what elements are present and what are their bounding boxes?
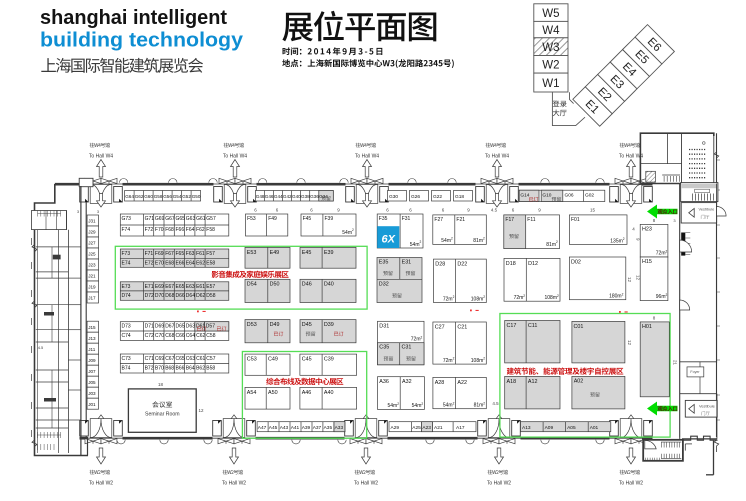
- svg-text:To Hall W4: To Hall W4: [485, 154, 509, 160]
- svg-text:F27: F27: [434, 217, 443, 223]
- svg-text:D45: D45: [302, 322, 312, 328]
- svg-text:C31: C31: [402, 345, 412, 351]
- svg-text:F53: F53: [247, 216, 256, 222]
- svg-text:E39: E39: [324, 250, 334, 256]
- svg-text:6: 6: [512, 208, 515, 213]
- svg-text:135m: 135m: [610, 238, 623, 244]
- svg-text:F62: F62: [196, 227, 205, 233]
- svg-text:A45: A45: [269, 425, 278, 431]
- svg-text:F11: F11: [527, 217, 535, 223]
- svg-text:F57: F57: [206, 251, 215, 257]
- svg-text:F69: F69: [155, 251, 164, 257]
- svg-text:To Hall W4: To Hall W4: [223, 154, 247, 160]
- svg-text:F70: F70: [155, 227, 164, 233]
- svg-text:B58: B58: [206, 366, 215, 372]
- svg-text:A32: A32: [402, 379, 412, 385]
- svg-text:B68: B68: [165, 366, 174, 372]
- svg-text:B62: B62: [196, 366, 205, 372]
- svg-text:D71: D71: [145, 324, 154, 330]
- svg-text:E74: E74: [122, 260, 131, 266]
- svg-text:F74: F74: [122, 227, 131, 233]
- svg-text:2: 2: [483, 236, 485, 240]
- svg-text:G18: G18: [455, 194, 464, 200]
- svg-text:A50: A50: [268, 390, 278, 396]
- svg-text:D70: D70: [155, 293, 164, 299]
- svg-text:180m: 180m: [609, 294, 622, 300]
- svg-text:D72: D72: [145, 293, 154, 299]
- svg-text:To Hall W2: To Hall W2: [487, 481, 511, 487]
- svg-text:C64: C64: [186, 333, 195, 339]
- svg-text:To Hall W2: To Hall W2: [354, 481, 378, 487]
- svg-text:2: 2: [523, 294, 525, 298]
- svg-text:E72: E72: [145, 260, 154, 266]
- svg-text:4.5: 4.5: [491, 208, 498, 213]
- svg-text:F45: F45: [303, 216, 312, 222]
- svg-text:F17: F17: [505, 217, 514, 223]
- svg-text:54m: 54m: [443, 403, 453, 409]
- svg-text:D68: D68: [165, 293, 174, 299]
- svg-text:D65: D65: [176, 324, 185, 330]
- svg-text:D32: D32: [379, 281, 389, 287]
- svg-text:C63: C63: [186, 356, 195, 362]
- svg-text:D46: D46: [302, 282, 312, 288]
- svg-text:12: 12: [199, 408, 205, 413]
- svg-text:72m: 72m: [411, 337, 421, 343]
- svg-text:2: 2: [556, 240, 558, 244]
- svg-text:G65: G65: [176, 216, 186, 222]
- svg-text:C74: C74: [122, 333, 131, 339]
- svg-text:C68: C68: [165, 333, 174, 339]
- svg-text:B72: B72: [145, 366, 154, 372]
- svg-text:6: 6: [310, 208, 313, 213]
- svg-text:A23: A23: [422, 425, 431, 431]
- svg-text:E58: E58: [206, 260, 215, 266]
- svg-text:F49: F49: [268, 216, 277, 222]
- svg-text:F68: F68: [165, 227, 174, 233]
- svg-text:72m: 72m: [656, 251, 666, 257]
- svg-text:A17: A17: [456, 425, 465, 431]
- svg-text:A46: A46: [302, 390, 312, 396]
- svg-text:81m: 81m: [546, 242, 556, 248]
- svg-text:54m: 54m: [441, 238, 451, 244]
- svg-text:G71: G71: [145, 216, 155, 222]
- svg-text:C69: C69: [155, 356, 164, 362]
- svg-text:2: 2: [352, 228, 354, 232]
- svg-text:B70: B70: [155, 366, 164, 372]
- svg-text:2: 2: [622, 293, 624, 297]
- svg-text:G40: G40: [292, 194, 301, 199]
- svg-text:To Hall W2: To Hall W2: [89, 481, 113, 487]
- svg-text:E62: E62: [196, 260, 205, 266]
- svg-text:G62: G62: [135, 194, 144, 199]
- svg-text:D40: D40: [324, 282, 334, 288]
- svg-text:F01: F01: [571, 217, 580, 223]
- svg-text:A29: A29: [391, 425, 400, 431]
- svg-text:J17: J17: [88, 296, 96, 301]
- svg-text:G73: G73: [122, 216, 132, 222]
- svg-text:J31: J31: [88, 219, 96, 224]
- svg-text:8: 8: [653, 316, 656, 321]
- svg-text:6: 6: [442, 208, 445, 213]
- svg-text:D54: D54: [247, 282, 257, 288]
- svg-text:G56: G56: [163, 194, 172, 199]
- svg-text:3: 3: [77, 209, 80, 214]
- svg-text:6: 6: [386, 208, 389, 213]
- svg-text:Foyer: Foyer: [690, 370, 700, 374]
- svg-text:2: 2: [666, 249, 668, 253]
- svg-text:B74: B74: [122, 366, 131, 372]
- svg-text:G10: G10: [542, 193, 551, 199]
- svg-text:F64: F64: [186, 227, 195, 233]
- svg-text:D64: D64: [186, 293, 195, 299]
- svg-text:D58: D58: [206, 293, 215, 299]
- svg-text:G52: G52: [182, 194, 191, 199]
- svg-text:To Hall W4: To Hall W4: [355, 154, 379, 160]
- svg-text:E64: E64: [186, 260, 195, 266]
- svg-text:Vestibule: Vestibule: [699, 207, 715, 212]
- svg-text:G14: G14: [520, 193, 529, 199]
- svg-text:D39: D39: [324, 322, 334, 328]
- svg-text:C49: C49: [268, 357, 278, 363]
- svg-text:4: 4: [632, 227, 635, 232]
- svg-text:D12: D12: [528, 261, 538, 267]
- svg-text:6: 6: [409, 208, 412, 213]
- svg-text:E61: E61: [196, 284, 205, 290]
- svg-text:C53: C53: [247, 357, 257, 363]
- svg-text:A40: A40: [324, 390, 334, 396]
- svg-text:W3: W3: [542, 42, 559, 54]
- svg-text:H15: H15: [642, 259, 652, 265]
- svg-text:72m: 72m: [443, 296, 453, 302]
- svg-text:Seminar Room: Seminar Room: [145, 412, 180, 418]
- svg-text:A39: A39: [302, 425, 311, 431]
- svg-text:D22: D22: [457, 262, 467, 268]
- svg-text:54m: 54m: [412, 403, 422, 409]
- svg-text:J15: J15: [88, 325, 96, 330]
- svg-text:F66: F66: [176, 227, 185, 233]
- svg-text:C67: C67: [165, 356, 174, 362]
- svg-text:9: 9: [538, 208, 541, 213]
- svg-text:15: 15: [590, 208, 596, 213]
- svg-text:F71: F71: [145, 251, 154, 257]
- svg-text:81m: 81m: [474, 403, 484, 409]
- svg-text:A28: A28: [435, 380, 445, 386]
- svg-text:G48: G48: [256, 194, 265, 199]
- svg-text:A05: A05: [567, 425, 576, 431]
- svg-text:A21: A21: [434, 425, 443, 431]
- svg-text:G02: G02: [585, 193, 594, 199]
- svg-text:F65: F65: [176, 251, 185, 257]
- svg-text:2: 2: [483, 295, 485, 299]
- svg-text:E66: E66: [176, 260, 185, 266]
- svg-text:E73: E73: [122, 284, 131, 290]
- svg-text:D69: D69: [155, 324, 164, 330]
- svg-text:54m: 54m: [410, 242, 420, 248]
- svg-text:E67: E67: [165, 284, 174, 290]
- svg-text:J05: J05: [88, 380, 96, 385]
- svg-text:D31: D31: [379, 323, 389, 329]
- svg-text:E35: E35: [379, 260, 389, 266]
- svg-text:81m: 81m: [473, 238, 483, 244]
- svg-text:A12: A12: [528, 379, 538, 385]
- svg-text:A33: A33: [335, 425, 344, 431]
- svg-text:D02: D02: [571, 259, 581, 265]
- svg-text:E53: E53: [247, 250, 257, 256]
- svg-text:C72: C72: [145, 333, 154, 339]
- svg-text:B64: B64: [186, 366, 195, 372]
- svg-text:W1: W1: [542, 78, 559, 90]
- svg-text:G30: G30: [389, 194, 398, 200]
- svg-text:9: 9: [337, 208, 340, 213]
- svg-text:C73: C73: [122, 356, 131, 362]
- svg-text:6: 6: [276, 208, 279, 213]
- svg-text:J03: J03: [88, 391, 96, 396]
- svg-text:F35: F35: [379, 216, 388, 222]
- svg-text:J29: J29: [88, 230, 96, 235]
- svg-text:A02: A02: [574, 378, 584, 384]
- svg-text:A37: A37: [313, 425, 322, 431]
- svg-text:9: 9: [467, 208, 470, 213]
- svg-text:C21: C21: [457, 324, 467, 330]
- svg-text:C58: C58: [206, 333, 215, 339]
- svg-text:D67: D67: [165, 324, 174, 330]
- svg-text:3: 3: [673, 218, 676, 223]
- svg-text:D62: D62: [196, 293, 205, 299]
- svg-text:A22: A22: [457, 380, 467, 386]
- svg-text:J23: J23: [88, 263, 96, 268]
- svg-text:J11: J11: [88, 347, 96, 352]
- svg-text:12: 12: [627, 340, 632, 346]
- svg-text:C27: C27: [435, 324, 445, 330]
- svg-text:E57: E57: [206, 284, 215, 290]
- svg-text:A01: A01: [590, 425, 599, 431]
- svg-text:21: 21: [673, 360, 678, 366]
- svg-text:2: 2: [483, 401, 485, 405]
- svg-text:2: 2: [451, 236, 453, 240]
- svg-text:J27: J27: [88, 241, 96, 246]
- svg-text:F31: F31: [402, 216, 411, 222]
- svg-text:J13: J13: [88, 336, 96, 341]
- svg-text:D66: D66: [176, 293, 185, 299]
- svg-text:G50: G50: [192, 194, 201, 199]
- svg-text:shanghai intelligent: shanghai intelligent: [40, 6, 227, 29]
- svg-text:G26: G26: [411, 194, 420, 200]
- svg-text:F63: F63: [186, 251, 195, 257]
- svg-text:D28: D28: [435, 262, 445, 268]
- svg-text:8: 8: [653, 218, 656, 223]
- svg-text:2: 2: [421, 335, 423, 339]
- svg-text:F67: F67: [165, 251, 174, 257]
- svg-text:G67: G67: [165, 216, 175, 222]
- svg-text:2: 2: [557, 294, 559, 298]
- svg-text:C35: C35: [379, 345, 389, 351]
- svg-text:12: 12: [627, 277, 632, 283]
- svg-text:2: 2: [483, 357, 485, 361]
- svg-text:G63: G63: [186, 216, 196, 222]
- svg-text:A43: A43: [280, 425, 289, 431]
- svg-text:72m: 72m: [443, 358, 453, 364]
- svg-text:2: 2: [397, 402, 399, 406]
- svg-text:J19: J19: [88, 285, 96, 290]
- svg-text:2: 2: [453, 295, 455, 299]
- svg-text:D74: D74: [122, 293, 131, 299]
- svg-text:G46: G46: [265, 194, 274, 199]
- svg-text:G44: G44: [274, 194, 283, 199]
- svg-text:12: 12: [636, 275, 641, 281]
- svg-text:C62: C62: [196, 333, 205, 339]
- svg-text:W5: W5: [542, 8, 559, 20]
- svg-text:D53: D53: [247, 322, 257, 328]
- svg-text:A35: A35: [324, 425, 333, 431]
- svg-text:D57: D57: [206, 324, 215, 330]
- svg-text:54m: 54m: [342, 230, 352, 236]
- svg-text:E71: E71: [145, 284, 154, 290]
- svg-text:F61: F61: [196, 251, 205, 257]
- svg-text:108m: 108m: [471, 296, 484, 302]
- svg-text:J25: J25: [88, 252, 96, 257]
- svg-text:C17: C17: [507, 323, 517, 329]
- svg-text:G64: G64: [125, 194, 134, 199]
- svg-text:4.5: 4.5: [492, 401, 499, 406]
- svg-text:F21: F21: [456, 217, 465, 223]
- svg-text:J01: J01: [88, 402, 96, 407]
- svg-text:E69: E69: [155, 284, 164, 290]
- svg-text:G61: G61: [196, 216, 206, 222]
- svg-text:building technology: building technology: [40, 29, 244, 52]
- svg-text:J09: J09: [88, 358, 96, 363]
- svg-text:54m: 54m: [387, 403, 397, 409]
- svg-text:H23: H23: [642, 227, 652, 233]
- svg-text:108m: 108m: [544, 295, 557, 301]
- svg-text:D49: D49: [270, 322, 280, 328]
- svg-text:2: 2: [453, 401, 455, 405]
- svg-text:D18: D18: [506, 261, 516, 267]
- svg-text:2: 2: [666, 293, 668, 297]
- svg-text:C11: C11: [528, 323, 538, 329]
- svg-text:To Hall W2: To Hall W2: [619, 481, 643, 487]
- svg-text:2: 2: [420, 240, 422, 244]
- svg-text:E49: E49: [270, 250, 280, 256]
- svg-text:96m: 96m: [656, 294, 666, 300]
- svg-text:G06: G06: [565, 193, 574, 199]
- svg-text:J21: J21: [88, 274, 96, 279]
- svg-text:A09: A09: [545, 425, 554, 431]
- svg-text:4.5: 4.5: [38, 345, 44, 350]
- svg-text:H01: H01: [642, 324, 652, 330]
- svg-text:To Hall W2: To Hall W2: [222, 481, 246, 487]
- svg-text:C71: C71: [145, 356, 154, 362]
- svg-text:G22: G22: [433, 194, 442, 200]
- svg-text:C01: C01: [574, 324, 584, 330]
- svg-text:G38: G38: [301, 194, 310, 199]
- svg-text:E65: E65: [176, 284, 185, 290]
- svg-text:A41: A41: [291, 425, 300, 431]
- svg-text:G54: G54: [173, 194, 182, 199]
- svg-text:E31: E31: [402, 260, 412, 266]
- svg-text:G69: G69: [155, 216, 165, 222]
- svg-text:W4: W4: [542, 25, 560, 37]
- svg-text:A18: A18: [507, 379, 517, 385]
- svg-text:F58: F58: [206, 227, 215, 233]
- svg-text:F39: F39: [325, 216, 334, 222]
- svg-text:2: 2: [623, 237, 625, 241]
- svg-text:A25: A25: [412, 425, 421, 431]
- svg-text:C39: C39: [324, 357, 334, 363]
- svg-text:A47: A47: [258, 425, 267, 431]
- svg-text:2: 2: [453, 357, 455, 361]
- svg-text:6: 6: [254, 208, 257, 213]
- svg-text:C70: C70: [155, 333, 164, 339]
- svg-text:To Hall W4: To Hall W4: [89, 154, 113, 160]
- svg-text:D73: D73: [122, 324, 131, 330]
- svg-text:E63: E63: [186, 284, 195, 290]
- svg-text:B66: B66: [176, 366, 185, 372]
- svg-text:E45: E45: [302, 250, 312, 256]
- svg-text:C65: C65: [176, 356, 185, 362]
- svg-text:F73: F73: [122, 251, 131, 257]
- svg-text:C45: C45: [302, 357, 312, 363]
- svg-text:2: 2: [421, 402, 423, 406]
- svg-text:A36: A36: [379, 379, 389, 385]
- svg-text:3: 3: [97, 209, 100, 214]
- svg-text:D63: D63: [186, 324, 195, 330]
- svg-text:G58: G58: [154, 194, 163, 199]
- svg-text:C57: C57: [206, 356, 215, 362]
- svg-text:G42: G42: [283, 194, 292, 199]
- svg-text:G57: G57: [206, 216, 216, 222]
- svg-text:F72: F72: [145, 227, 154, 233]
- svg-text:72m: 72m: [514, 295, 524, 301]
- svg-text:G60: G60: [144, 194, 153, 199]
- svg-text:C66: C66: [176, 333, 185, 339]
- svg-text:J07: J07: [88, 369, 96, 374]
- svg-text:9: 9: [636, 238, 641, 241]
- svg-text:W2: W2: [542, 60, 559, 72]
- svg-text:6X: 6X: [381, 234, 395, 246]
- svg-text:A54: A54: [247, 390, 257, 396]
- svg-text:E70: E70: [155, 260, 164, 266]
- svg-text:D50: D50: [270, 282, 280, 288]
- svg-text:G36: G36: [310, 194, 319, 199]
- svg-text:108m: 108m: [471, 358, 484, 364]
- svg-text:C61: C61: [196, 356, 205, 362]
- svg-text:A13: A13: [522, 425, 531, 431]
- svg-text:E68: E68: [165, 260, 174, 266]
- svg-text:18: 18: [158, 382, 164, 387]
- svg-text:Vestibule: Vestibule: [699, 404, 715, 409]
